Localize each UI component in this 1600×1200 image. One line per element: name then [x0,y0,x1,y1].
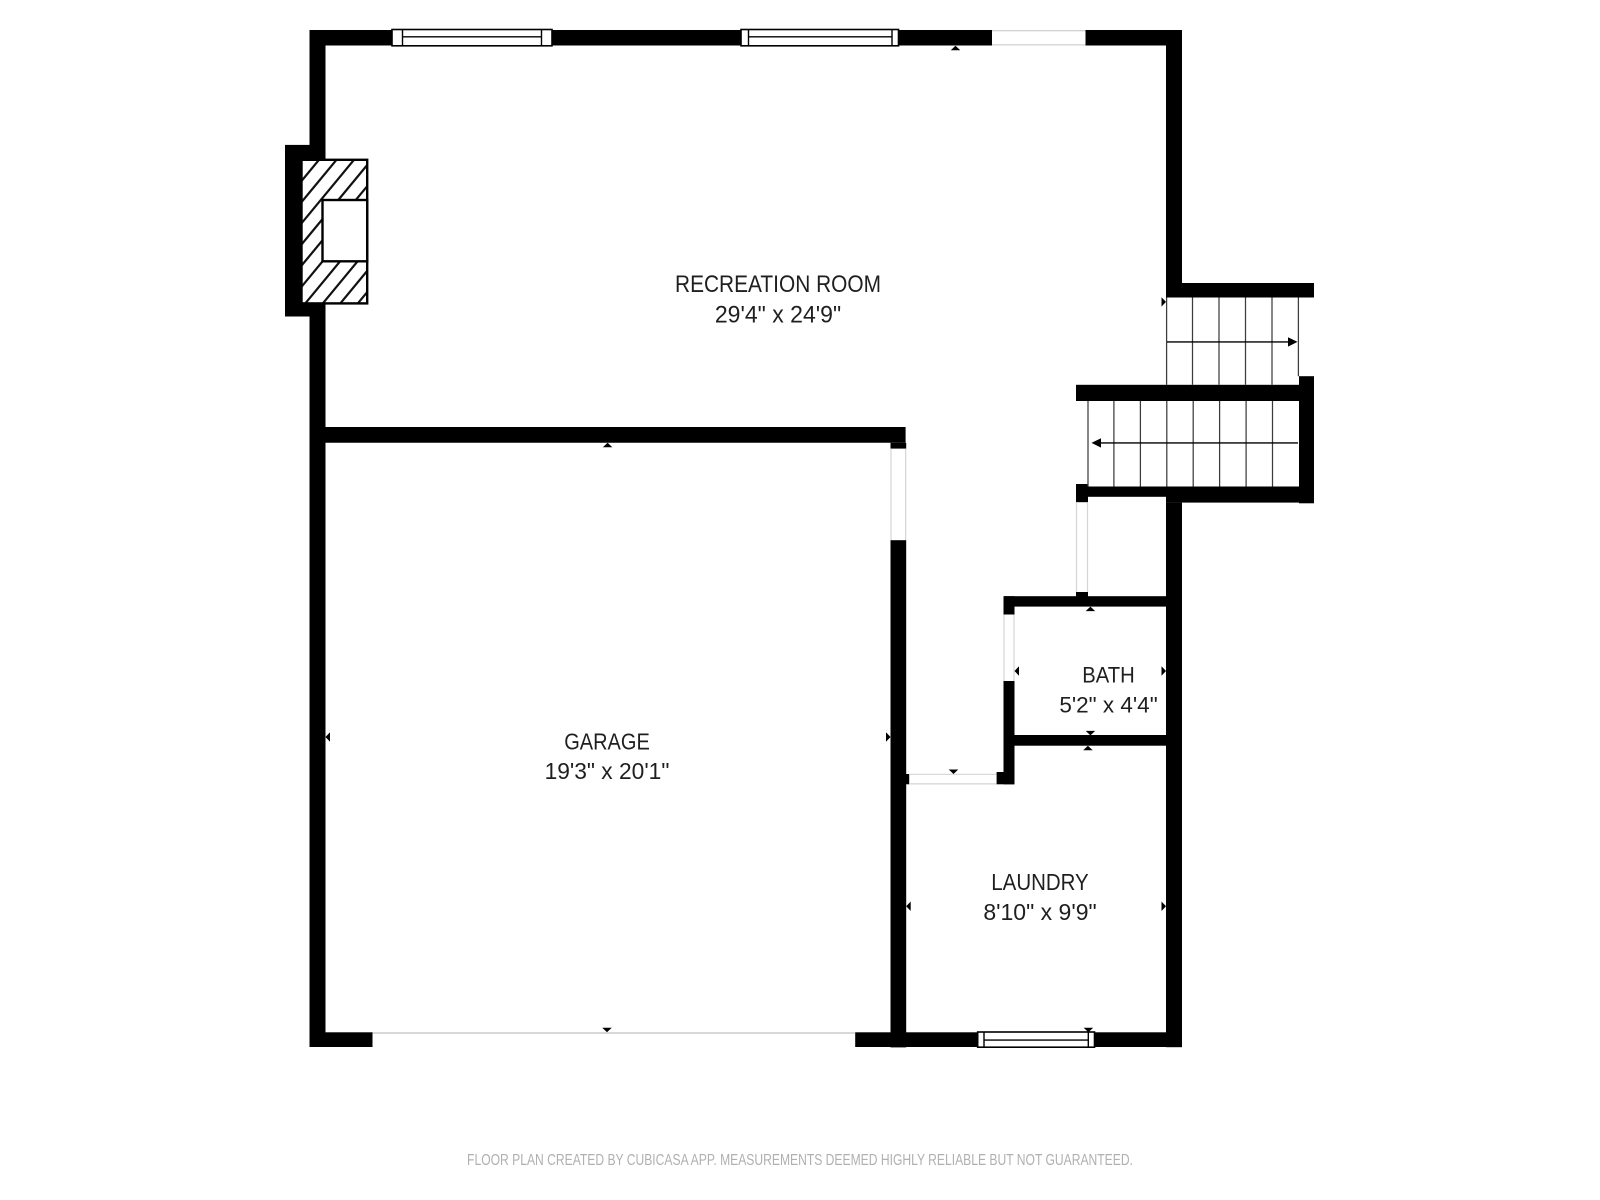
svg-text:29'4" x 24'9": 29'4" x 24'9" [715,301,841,328]
svg-text:5'2" x 4'4": 5'2" x 4'4" [1059,693,1157,718]
svg-text:LAUNDRY: LAUNDRY [991,869,1089,895]
svg-text:BATH: BATH [1082,662,1134,687]
svg-text:GARAGE: GARAGE [564,728,650,755]
svg-text:19'3" x 20'1": 19'3" x 20'1" [545,758,670,784]
svg-text:8'10" x 9'9": 8'10" x 9'9" [983,899,1096,925]
svg-text:FLOOR PLAN CREATED BY CUBICASA: FLOOR PLAN CREATED BY CUBICASA APP. MEAS… [467,1151,1133,1169]
svg-text:RECREATION ROOM: RECREATION ROOM [675,271,881,298]
